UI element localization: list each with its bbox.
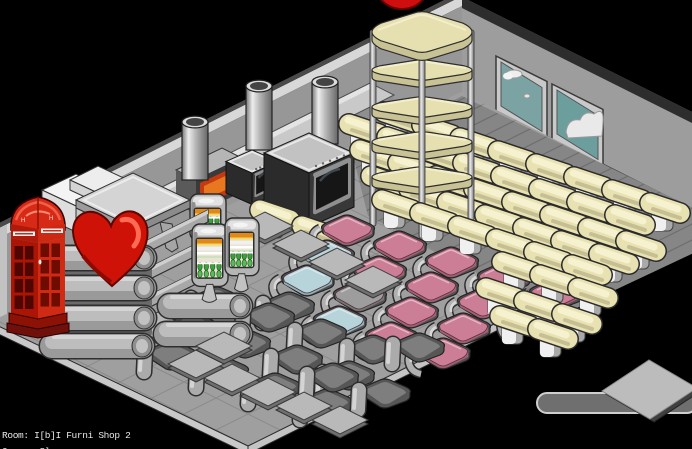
svg-text:H: H xyxy=(21,218,25,224)
svg-text:Room: I[b]I Furni Shop 2: Room: I[b]I Furni Shop 2 xyxy=(2,430,131,441)
svg-text:H: H xyxy=(49,216,53,222)
